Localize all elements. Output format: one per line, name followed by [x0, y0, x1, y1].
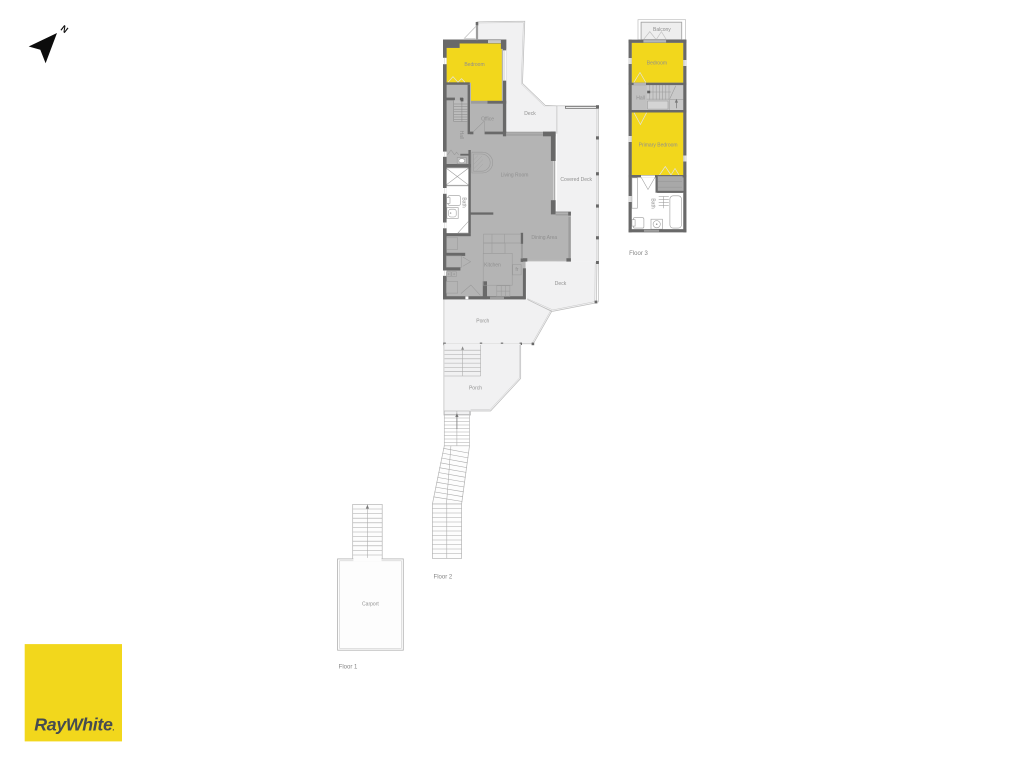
svg-text:Bath: Bath — [460, 197, 466, 208]
svg-text:Living Room: Living Room — [501, 172, 529, 178]
svg-text:RayWhite.: RayWhite. — [34, 714, 114, 734]
svg-text:Dining Area: Dining Area — [531, 235, 557, 241]
svg-text:Kitchen: Kitchen — [484, 262, 501, 268]
svg-text:Carport: Carport — [362, 602, 379, 608]
svg-text:Floor 1: Floor 1 — [339, 664, 358, 670]
svg-text:Bath: Bath — [650, 198, 656, 209]
svg-text:Porch: Porch — [469, 385, 482, 391]
svg-text:Floor 3: Floor 3 — [629, 251, 648, 257]
svg-text:Hall: Hall — [458, 131, 464, 140]
svg-text:Covered Deck: Covered Deck — [560, 177, 592, 183]
svg-text:Deck: Deck — [555, 281, 567, 287]
svg-text:Porch: Porch — [476, 318, 489, 324]
svg-text:Floor 2: Floor 2 — [434, 575, 453, 581]
svg-text:Balcony: Balcony — [653, 27, 671, 33]
svg-text:Hall: Hall — [636, 95, 645, 101]
svg-text:Office: Office — [481, 117, 494, 123]
svg-text:Primary Bedroom: Primary Bedroom — [639, 142, 678, 148]
svg-text:Bedroom: Bedroom — [464, 62, 484, 68]
svg-text:fr: fr — [515, 267, 518, 273]
svg-text:Deck: Deck — [524, 111, 536, 117]
svg-text:Bedroom: Bedroom — [647, 61, 667, 67]
